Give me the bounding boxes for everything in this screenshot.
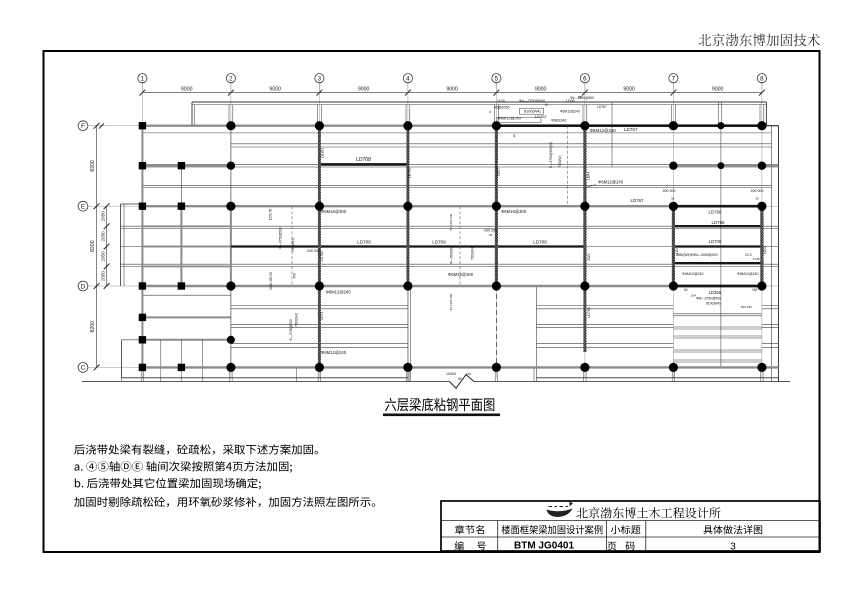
svg-text:50 1250 250: 50 1250 250 <box>449 293 453 310</box>
svg-text:9000: 9000 <box>181 86 193 92</box>
svg-text:LD768: LD768 <box>712 220 725 225</box>
svg-text:8100(W4): 8100(W4) <box>706 302 720 306</box>
svg-text:LD04: LD04 <box>587 172 591 181</box>
svg-text:8550(W4)Φ6M—5X50@500: 8550(W4)Φ6M—5X50@500 <box>676 253 718 257</box>
svg-text:2050: 2050 <box>101 271 106 282</box>
svg-text:Φ6M12@240: Φ6M12@240 <box>598 179 624 184</box>
svg-text:1250 50: 1250 50 <box>269 209 273 221</box>
svg-text:Φ6M12@240: Φ6M12@240 <box>682 272 704 276</box>
svg-text:8200: 8200 <box>90 240 96 252</box>
svg-text:ΦM—3750@500: ΦM—3750@500 <box>696 296 721 300</box>
svg-text:1250 250 50: 1250 250 50 <box>269 272 273 290</box>
svg-text:150: 150 <box>752 288 758 292</box>
svg-text:Φ6M16@300: Φ6M16@300 <box>448 272 474 277</box>
svg-text:Φ6M12@240: Φ6M12@240 <box>326 290 352 295</box>
svg-text:LD01: LD01 <box>675 246 679 254</box>
svg-text:1725: 1725 <box>753 257 760 261</box>
svg-text:150: 150 <box>466 372 471 376</box>
svg-text:7300(W): 7300(W) <box>558 155 562 167</box>
svg-text:3: 3 <box>730 541 736 552</box>
svg-text:M: M <box>545 103 548 107</box>
svg-text:LD766: LD766 <box>709 210 722 215</box>
svg-text:9000: 9000 <box>535 86 547 92</box>
svg-text:Φ—3750@500: Φ—3750@500 <box>289 319 293 341</box>
svg-text:22.5: 22.5 <box>745 253 752 257</box>
svg-text:LD708: LD708 <box>432 240 446 245</box>
svg-text:200 200: 200 200 <box>663 189 676 193</box>
svg-text:200 200: 200 200 <box>484 228 497 232</box>
svg-text:7300(W4): 7300(W4) <box>295 313 299 327</box>
svg-text:LD767: LD767 <box>597 105 607 109</box>
svg-text:F: F <box>81 123 85 130</box>
svg-text:LD708: LD708 <box>533 240 547 245</box>
svg-text:LD761: LD761 <box>587 307 591 318</box>
svg-text:30: 30 <box>671 197 675 201</box>
svg-text:Φ6M12@240: Φ6M12@240 <box>737 272 759 276</box>
svg-text:4: 4 <box>489 110 491 114</box>
svg-text:LD161: LD161 <box>321 148 325 159</box>
svg-text:Φ6M16@300: Φ6M16@300 <box>321 209 347 214</box>
svg-text:9000: 9000 <box>446 86 458 92</box>
svg-text:LD02: LD02 <box>763 246 767 254</box>
svg-text:200 200: 200 200 <box>307 249 320 253</box>
svg-text:BTM JG0401: BTM JG0401 <box>514 541 574 552</box>
svg-text:LD71: LD71 <box>320 311 324 320</box>
svg-text:Φ6M12@240: Φ6M12@240 <box>590 128 617 133</box>
svg-text:2050: 2050 <box>101 231 106 242</box>
svg-text:D: D <box>81 283 86 290</box>
svg-text:6: 6 <box>583 76 587 83</box>
svg-text:Φ6M12A0: Φ6M12A0 <box>551 118 566 122</box>
svg-text:9000: 9000 <box>712 86 724 92</box>
svg-text:10400: 10400 <box>446 372 456 376</box>
svg-text:LD708: LD708 <box>709 239 722 244</box>
svg-text:5,: 5, <box>513 134 516 138</box>
svg-text:Φ6M12@240: Φ6M12@240 <box>321 350 347 355</box>
svg-text:LD708: LD708 <box>356 157 371 163</box>
svg-text:LD767: LD767 <box>535 114 548 119</box>
svg-text:Φ—3750@500: Φ—3750@500 <box>278 227 282 249</box>
svg-text:7300(W4): 7300(W4) <box>470 246 474 260</box>
svg-text:LD761: LD761 <box>407 168 411 179</box>
svg-text:LD07: LD07 <box>497 168 501 177</box>
svg-text:200 000: 200 000 <box>751 189 764 193</box>
svg-text:Φ4—3750@500: Φ4—3750@500 <box>570 96 594 100</box>
svg-text:50: 50 <box>458 377 462 381</box>
svg-text:LD708: LD708 <box>357 240 371 245</box>
svg-text:Φ—3750@500(W): Φ—3750@500(W) <box>549 142 553 169</box>
svg-text:45@6250: 45@6250 <box>494 106 510 110</box>
svg-text:Φ6M16@300: Φ6M16@300 <box>501 209 527 214</box>
svg-text:LD762: LD762 <box>320 251 324 262</box>
svg-text:2: 2 <box>229 76 233 83</box>
svg-text:LD266: LD266 <box>709 290 722 295</box>
svg-text:E: E <box>81 204 85 211</box>
svg-text:8: 8 <box>760 76 764 83</box>
svg-text:9000: 9000 <box>358 86 370 92</box>
svg-text:8200: 8200 <box>90 160 96 172</box>
svg-text:30: 30 <box>755 197 759 201</box>
svg-text:4: 4 <box>406 76 410 83</box>
svg-text:5300(W4): 5300(W4) <box>291 238 295 252</box>
svg-text:2050: 2050 <box>101 251 106 262</box>
svg-text:50: 50 <box>684 288 688 292</box>
svg-text:8200: 8200 <box>90 321 96 333</box>
svg-text:1100: 1100 <box>497 99 505 103</box>
svg-text:Φ4—3750@500: Φ4—3750@500 <box>519 99 545 103</box>
svg-text:50 1250 430: 50 1250 430 <box>449 213 453 230</box>
svg-text:1: 1 <box>141 76 145 83</box>
svg-text:Φ—3506(W): Φ—3506(W) <box>449 246 453 264</box>
svg-text:9000: 9000 <box>269 86 281 92</box>
svg-text:5: 5 <box>495 76 499 83</box>
svg-text:LD767: LD767 <box>624 127 638 132</box>
svg-text:8100(W4): 8100(W4) <box>524 110 541 114</box>
svg-text:3: 3 <box>318 76 322 83</box>
svg-text:2320: 2320 <box>587 253 591 261</box>
svg-text:504 150: 504 150 <box>741 305 752 309</box>
svg-text:450: 450 <box>292 273 296 279</box>
svg-text:C: C <box>81 365 86 372</box>
svg-text:204: 204 <box>691 294 696 298</box>
svg-text:2050: 2050 <box>101 211 106 222</box>
svg-text:LD767: LD767 <box>631 198 644 203</box>
svg-text:Φ6M12@240: Φ6M12@240 <box>560 110 580 114</box>
svg-text:7: 7 <box>672 76 676 83</box>
svg-text:9000: 9000 <box>623 86 635 92</box>
svg-text:30: 30 <box>489 233 493 237</box>
